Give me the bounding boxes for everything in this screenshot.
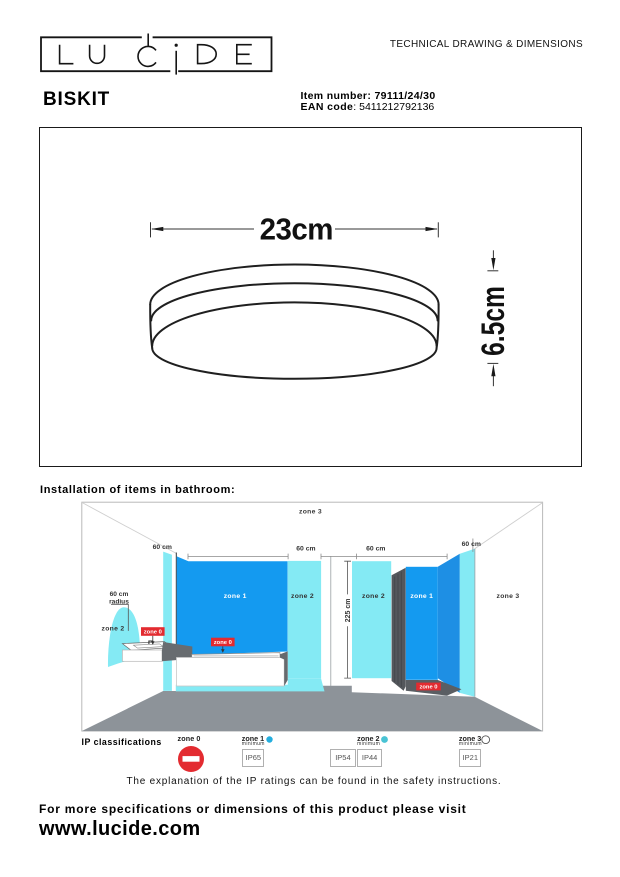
svg-text:60 cm: 60 cm	[110, 591, 129, 598]
svg-text:zone 1: zone 1	[224, 593, 247, 600]
svg-text:zone 0: zone 0	[419, 685, 437, 691]
svg-text:6.5cm: 6.5cm	[476, 286, 512, 356]
svg-text:60 cm: 60 cm	[462, 541, 481, 548]
svg-text:zone 2: zone 2	[291, 593, 314, 600]
svg-text:zone 1: zone 1	[410, 593, 433, 600]
svg-text:zone 0: zone 0	[214, 640, 232, 646]
svg-text:225 cm: 225 cm	[345, 599, 352, 623]
svg-text:zone 3: zone 3	[497, 593, 520, 600]
svg-text:60 cm: 60 cm	[153, 544, 172, 551]
svg-text:60 cm: 60 cm	[366, 546, 385, 553]
svg-text:zone 2: zone 2	[362, 593, 385, 600]
svg-text:radius: radius	[109, 598, 129, 605]
svg-text:zone 3: zone 3	[299, 509, 322, 516]
svg-text:23cm: 23cm	[260, 213, 333, 247]
svg-text:zone 2: zone 2	[102, 625, 125, 632]
svg-text:zone 0: zone 0	[144, 630, 162, 636]
svg-text:60 cm: 60 cm	[296, 546, 315, 553]
